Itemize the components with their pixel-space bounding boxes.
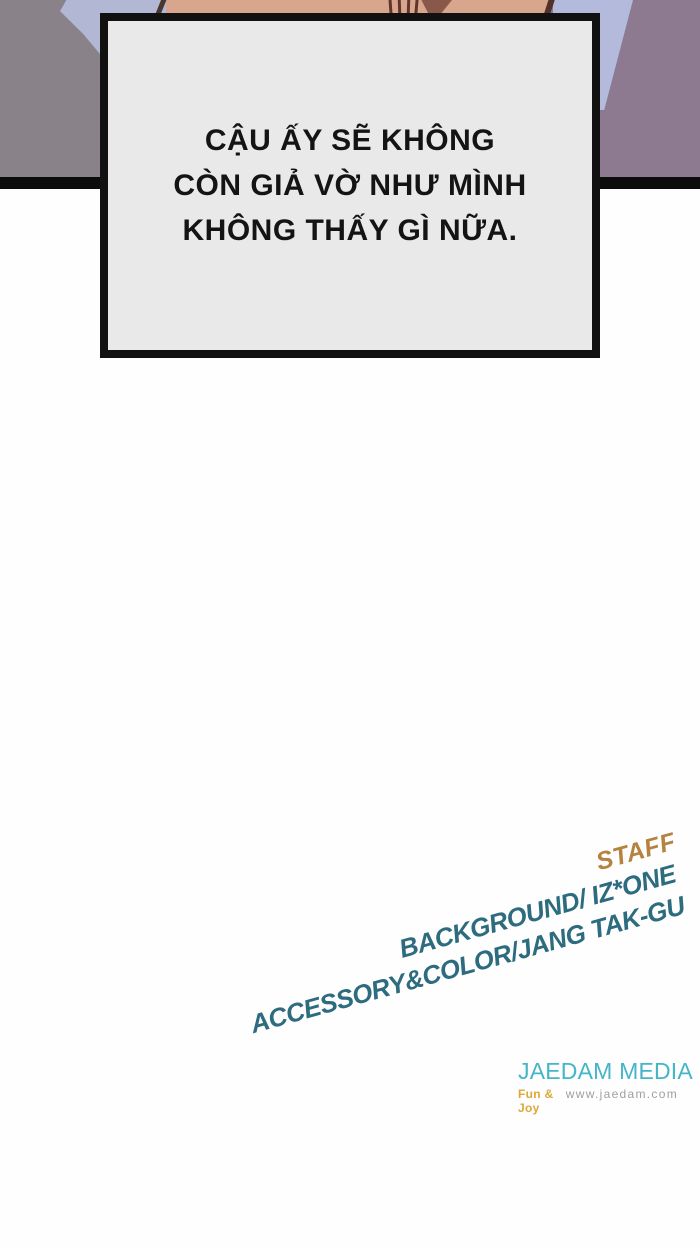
publisher-logo: JAEDAM MEDIA Fun & Joy www.jaedam.com (518, 1060, 678, 1115)
publisher-website: www.jaedam.com (566, 1087, 678, 1101)
publisher-name: JAEDAM MEDIA (518, 1060, 678, 1083)
dialogue-caption-box: CẬU ẤY SẼ KHÔNG CÒN GIẢ VỜ NHƯ MÌNH KHÔN… (100, 13, 600, 358)
dialogue-line: KHÔNG THẤY GÌ NỮA. (173, 208, 526, 253)
publisher-tagline: Fun & Joy (518, 1087, 566, 1115)
dialogue-text: CẬU ẤY SẼ KHÔNG CÒN GIẢ VỜ NHƯ MÌNH KHÔN… (173, 118, 526, 253)
staff-credits: STAFF BACKGROUND/ IZ*ONE ACCESSORY&COLOR… (235, 826, 675, 924)
dialogue-line: CẬU ẤY SẼ KHÔNG (173, 118, 526, 163)
publisher-subline: Fun & Joy www.jaedam.com (518, 1087, 678, 1115)
dialogue-line: CÒN GIẢ VỜ NHƯ MÌNH (173, 163, 526, 208)
